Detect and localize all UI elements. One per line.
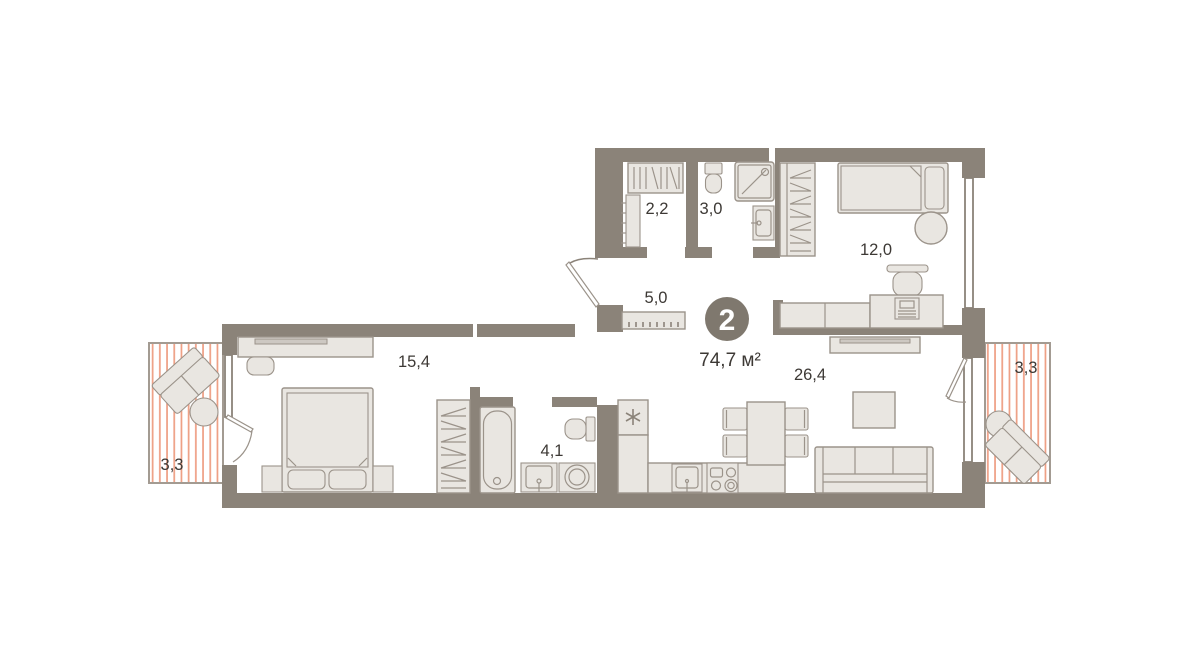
kitchen-sink-icon xyxy=(672,464,702,492)
washbasin-icon xyxy=(751,206,774,240)
dining-table-icon xyxy=(747,402,785,465)
double-bed-icon xyxy=(282,388,373,492)
window-master-icon xyxy=(225,355,232,417)
toilet-icon xyxy=(565,417,595,441)
room-label-bedroom-master: 15,4 xyxy=(398,353,430,371)
window-bedroom-icon xyxy=(965,178,973,308)
nightstand-icon xyxy=(373,466,393,492)
entrance-door-icon xyxy=(566,259,599,308)
toilet-icon xyxy=(705,163,722,193)
dresser-tv-icon xyxy=(238,337,373,357)
bathtub-icon xyxy=(480,407,515,493)
tv-stand-icon xyxy=(830,337,920,353)
total-area-label: 74,7 м² xyxy=(699,350,761,371)
shower-cabin-icon xyxy=(735,162,774,201)
chair-icon xyxy=(723,435,747,457)
wardrobe-icon xyxy=(437,400,470,493)
nightstand-icon xyxy=(262,466,282,492)
room-label-bathroom-guest: 3,0 xyxy=(700,200,723,218)
office-chair-icon xyxy=(887,265,928,296)
room-label-bedroom: 12,0 xyxy=(860,241,892,259)
chair-icon xyxy=(723,408,747,430)
window-living-icon xyxy=(964,358,972,462)
room-label-dressing: 2,2 xyxy=(646,200,669,218)
room-label-hallway: 5,0 xyxy=(645,289,668,307)
computer-icon xyxy=(895,298,919,319)
fridge-icon xyxy=(618,400,648,435)
room-label-balcony-left: 3,3 xyxy=(161,456,184,474)
washbasin-icon xyxy=(521,463,557,492)
sofa-icon xyxy=(815,447,933,493)
stool-icon xyxy=(247,357,274,375)
shoe-bench-icon xyxy=(622,312,685,329)
dining-table-set xyxy=(723,402,808,465)
hanger-rack-icon xyxy=(628,163,683,193)
shelf-column-icon xyxy=(621,195,640,247)
room-label-kitchen-living: 26,4 xyxy=(794,366,826,384)
chair-icon xyxy=(785,435,808,457)
chair-icon xyxy=(785,408,808,430)
coat-closet-icon xyxy=(780,163,815,256)
room-label-balcony-right: 3,3 xyxy=(1015,359,1038,377)
apartment-badge: 2 74,7 м² xyxy=(699,297,761,371)
washing-machine-icon xyxy=(559,463,595,492)
balcony-table-icon xyxy=(190,398,218,426)
balcony-door-left-icon xyxy=(226,415,253,462)
room-count-number: 2 xyxy=(719,304,736,337)
kitchen-living-furniture xyxy=(618,392,933,493)
single-bed-icon xyxy=(838,163,948,213)
floor-plan-canvas: 2,2 3,0 12,0 5,0 15,4 4,1 26,4 3,3 3,3 2… xyxy=(0,0,1200,654)
kitchen-cabinet-icon xyxy=(618,435,648,493)
stove-icon xyxy=(707,463,738,493)
coffee-table-icon xyxy=(853,392,895,428)
floor-plan-page: 2,2 3,0 12,0 5,0 15,4 4,1 26,4 3,3 3,3 2… xyxy=(0,0,1200,654)
pouf-icon xyxy=(915,212,947,244)
bedroom-master-furniture xyxy=(238,337,470,493)
bathroom-furniture xyxy=(480,407,595,493)
room-label-bathroom: 4,1 xyxy=(541,442,564,460)
